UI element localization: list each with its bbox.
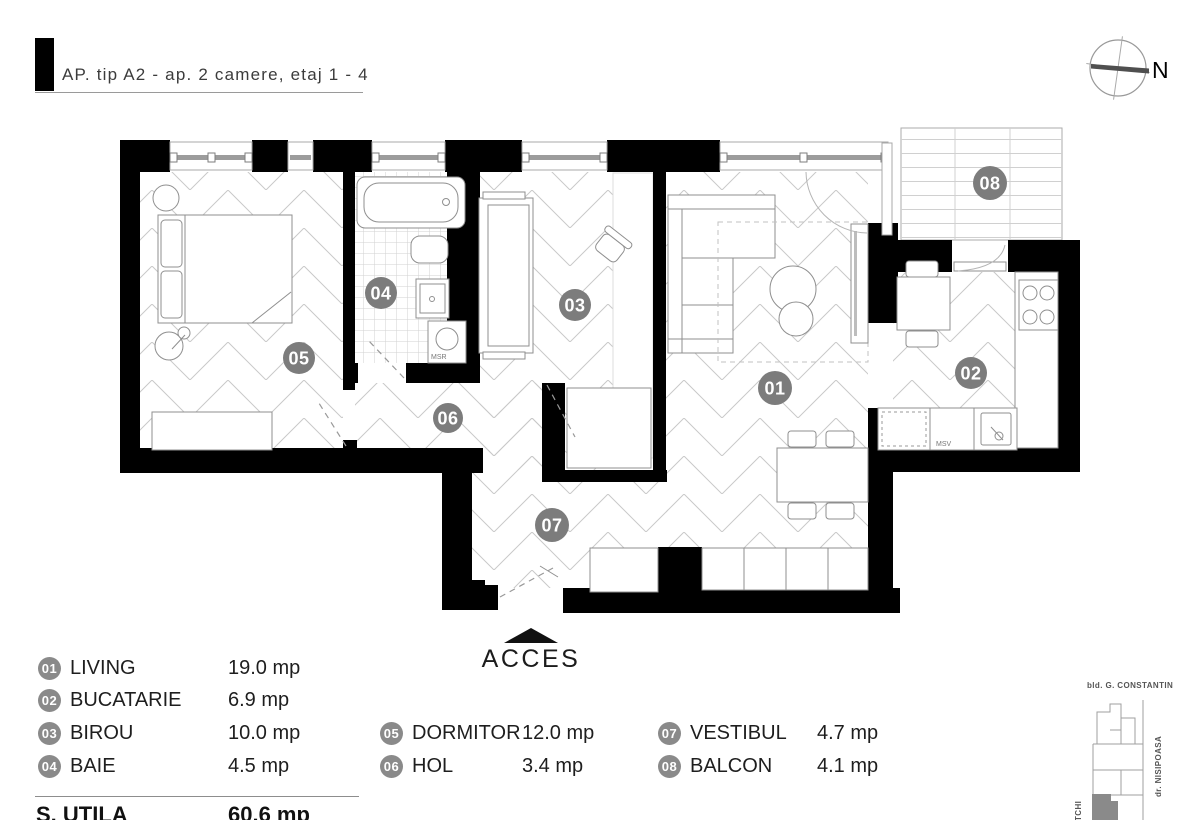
living-closet	[702, 548, 868, 590]
legend-area-balcon: 4.1 mp	[817, 755, 878, 778]
svg-text:05: 05	[288, 349, 309, 369]
access-arrow-icon	[504, 628, 558, 643]
compass: N	[1082, 32, 1169, 104]
floors	[140, 128, 1062, 588]
toilet	[411, 236, 448, 263]
legend-name-birou: BIROU	[70, 722, 133, 745]
room-badge-04: 04	[365, 277, 397, 309]
site-parcel-upper	[1097, 704, 1135, 744]
room-badge-02: 02	[955, 357, 987, 389]
total-divider	[35, 796, 359, 797]
legend-name-hol: HOL	[412, 755, 453, 778]
svg-text:01: 01	[764, 379, 785, 399]
legend-badge-05: 05	[380, 722, 403, 745]
floor-plan-page: MSR	[0, 0, 1200, 820]
svg-text:04: 04	[370, 284, 391, 304]
kitchen-sink	[981, 413, 1011, 445]
bath-sink	[416, 279, 449, 318]
total-label: S. UTILA	[36, 802, 128, 820]
legend-row-balcon: 08 BALCON 4.1 mp	[658, 754, 772, 778]
svg-text:07: 07	[541, 516, 562, 536]
room-badge-06: 06	[433, 403, 463, 433]
legend-badge-06: 06	[380, 755, 403, 778]
window-dormitor	[170, 142, 252, 170]
legend-name-living: LIVING	[70, 657, 136, 680]
legend-row-dormitor: 05 DORMITOR 12.0 mp	[380, 721, 521, 745]
legend-badge-01: 01	[38, 657, 61, 680]
svg-text:02: 02	[960, 364, 981, 384]
site-parcel-lines	[1110, 718, 1121, 744]
legend-badge-07: 07	[658, 722, 681, 745]
legend-row-birou: 03 BIROU 10.0 mp	[38, 721, 133, 745]
room-badge-08: 08	[973, 166, 1007, 200]
legend-area-dormitor: 12.0 mp	[522, 722, 594, 745]
washer-label: MSR	[431, 354, 447, 361]
legend-row-baie: 04 BAIE 4.5 mp	[38, 754, 116, 778]
title-bar-icon	[35, 38, 54, 91]
bathtub	[357, 177, 465, 228]
room-badge-03: 03	[559, 289, 591, 321]
legend-area-baie: 4.5 mp	[228, 755, 289, 778]
legend-name-bucatarie: BUCATARIE	[70, 689, 182, 712]
legend-badge-04: 04	[38, 755, 61, 778]
kitchen-counter-bottom: MSV	[878, 408, 1017, 450]
bed	[158, 215, 292, 323]
svg-text:08: 08	[979, 174, 1000, 194]
street-label-top: bld. G. CONSTANTIN	[1087, 681, 1173, 690]
site-map: bld. G. CONSTANTIN dr. NISIPOASA TCHI	[1074, 681, 1173, 820]
svg-text:06: 06	[437, 409, 458, 429]
dresser	[152, 412, 272, 450]
dishwasher-label: MSV	[936, 441, 952, 448]
legend-row-living: 01 LIVING 19.0 mp	[38, 656, 136, 680]
room-badge-07: 07	[535, 508, 569, 542]
legend-area-living: 19.0 mp	[228, 657, 300, 680]
washing-machine: MSR	[428, 321, 466, 363]
site-building-highlight	[1092, 794, 1118, 820]
legend-row-vestibul: 07 VESTIBUL 4.7 mp	[658, 721, 787, 745]
compass-north-label: N	[1152, 57, 1169, 83]
legend-name-baie: BAIE	[70, 755, 116, 778]
street-label-left: TCHI	[1074, 801, 1083, 820]
balcony-door-kitchen	[954, 262, 1006, 271]
niche-closet	[567, 388, 651, 468]
legend-area-birou: 10.0 mp	[228, 722, 300, 745]
window-dormitor-small	[288, 142, 313, 170]
legend-area-hol: 3.4 mp	[522, 755, 583, 778]
total-value: 60.6 mp	[228, 802, 310, 820]
legend-row-bucatarie: 02 BUCATARIE 6.9 mp	[38, 688, 182, 712]
title-block: AP. tip A2 - ap. 2 camere, etaj 1 - 4	[35, 38, 365, 94]
room-badge-05: 05	[283, 342, 315, 374]
plant	[153, 185, 179, 211]
window-living	[720, 142, 888, 170]
legend-row-hol: 06 HOL 3.4 mp	[380, 754, 453, 778]
legend-badge-08: 08	[658, 755, 681, 778]
window-birou	[522, 142, 607, 170]
legend-area-bucatarie: 6.9 mp	[228, 689, 289, 712]
street-label-right: dr. NISIPOASA	[1154, 736, 1163, 797]
legend-name-dormitor: DORMITOR	[412, 722, 521, 745]
legend-badge-03: 03	[38, 722, 61, 745]
room-badge-01: 01	[758, 371, 792, 405]
svg-text:03: 03	[564, 296, 585, 316]
compass-needle-icon	[1091, 64, 1149, 74]
legend-name-vestibul: VESTIBUL	[690, 722, 787, 745]
access-label: ACCES	[482, 645, 581, 673]
window-baie	[372, 142, 445, 170]
legend-area-vestibul: 4.7 mp	[817, 722, 878, 745]
desk	[479, 192, 533, 359]
corner-glass	[882, 143, 892, 235]
vestibul-closet	[590, 548, 658, 592]
legend-badge-02: 02	[38, 689, 61, 712]
stove	[1019, 280, 1058, 330]
access-marker: ACCES	[482, 628, 581, 673]
legend-name-balcon: BALCON	[690, 755, 772, 778]
tv-unit	[851, 224, 868, 343]
page-title: AP. tip A2 - ap. 2 camere, etaj 1 - 4	[62, 65, 369, 85]
title-underline	[35, 92, 363, 93]
